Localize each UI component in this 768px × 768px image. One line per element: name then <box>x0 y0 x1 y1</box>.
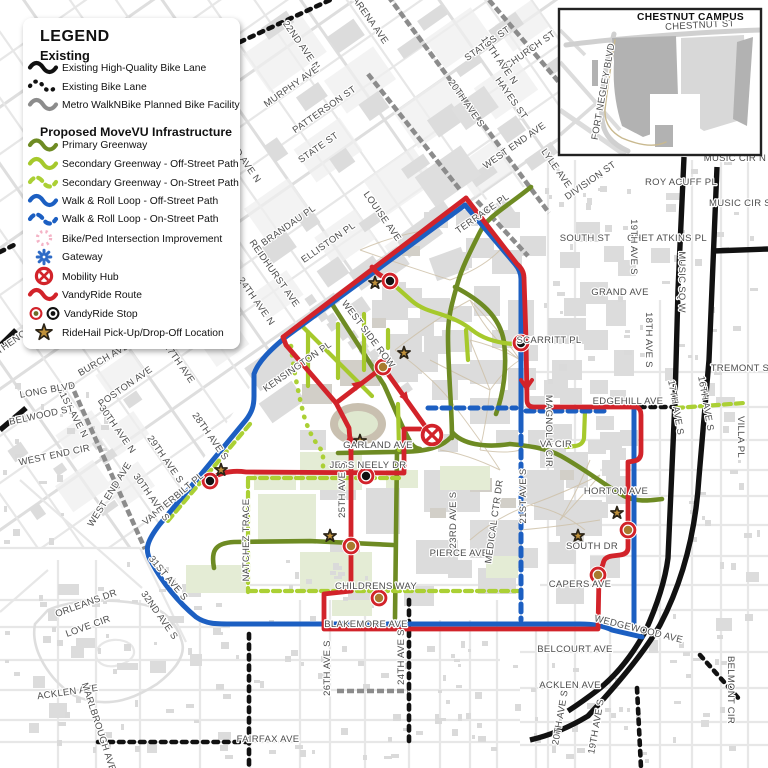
svg-text:PIERCE AVE: PIERCE AVE <box>430 548 489 559</box>
svg-text:MAGNOLIA CIR: MAGNOLIA CIR <box>543 395 554 467</box>
svg-text:CHESTNUT CAMPUS: CHESTNUT CAMPUS <box>637 12 744 23</box>
svg-text:Metro WalkNBike Planned Bike F: Metro WalkNBike Planned Bike Facility <box>62 100 240 111</box>
svg-text:SOUTH ST: SOUTH ST <box>560 233 610 244</box>
svg-text:Existing High-Quality Bike Lan: Existing High-Quality Bike Lane <box>62 63 207 74</box>
svg-text:VandyRide Route: VandyRide Route <box>62 290 142 301</box>
svg-text:BLAKEMORE AVE: BLAKEMORE AVE <box>324 619 407 630</box>
svg-text:Mobility Hub: Mobility Hub <box>62 272 119 283</box>
svg-text:MUSIC SQ W: MUSIC SQ W <box>676 251 687 313</box>
svg-text:HORTON AVE: HORTON AVE <box>584 486 648 497</box>
svg-text:23RD AVE S: 23RD AVE S <box>448 492 459 549</box>
svg-text:Existing: Existing <box>40 48 90 63</box>
svg-text:VILLA PL: VILLA PL <box>735 416 746 458</box>
svg-text:Walk & Roll Loop - Off-Street: Walk & Roll Loop - Off-Street Path <box>62 196 219 207</box>
svg-text:Secondary Greenway - Off-Stree: Secondary Greenway - Off-Street Path <box>62 159 239 170</box>
svg-text:EDGEHILL AVE: EDGEHILL AVE <box>593 396 664 407</box>
svg-text:BELMONT CIR: BELMONT CIR <box>725 656 736 724</box>
svg-text:RideHail Pick-Up/Drop-Off Loca: RideHail Pick-Up/Drop-Off Location <box>62 328 224 339</box>
svg-text:21ST AVE S: 21ST AVE S <box>518 469 529 524</box>
svg-text:SCARRITT PL: SCARRITT PL <box>517 335 582 346</box>
svg-text:24TH AVE S: 24TH AVE S <box>396 629 407 685</box>
svg-text:LEGEND: LEGEND <box>40 28 110 45</box>
svg-text:VandyRide Stop: VandyRide Stop <box>64 309 138 320</box>
svg-text:TREMONT ST: TREMONT ST <box>711 363 768 374</box>
svg-text:GRAND AVE: GRAND AVE <box>591 287 648 298</box>
svg-text:NATCHEZ TRACE: NATCHEZ TRACE <box>241 499 252 582</box>
svg-text:ACKLEN AVE: ACKLEN AVE <box>539 680 600 691</box>
svg-text:ROY ACUFF PL: ROY ACUFF PL <box>645 177 717 188</box>
svg-text:SOUTH DR: SOUTH DR <box>566 541 618 552</box>
svg-text:VA CIR: VA CIR <box>540 439 572 450</box>
svg-text:19TH AVE S: 19TH AVE S <box>628 219 639 275</box>
svg-text:Existing Bike Lane: Existing Bike Lane <box>62 82 147 93</box>
svg-text:Walk & Roll Loop - On-Street P: Walk & Roll Loop - On-Street Path <box>62 214 219 225</box>
svg-text:GARLAND AVE: GARLAND AVE <box>343 440 413 451</box>
svg-text:Gateway: Gateway <box>62 252 103 263</box>
svg-text:25TH AVE S: 25TH AVE S <box>337 462 348 518</box>
svg-text:Proposed MoveVU Infrastructure: Proposed MoveVU Infrastructure <box>40 125 232 139</box>
svg-text:26TH AVE S: 26TH AVE S <box>322 640 333 696</box>
svg-text:MUSIC CIR S: MUSIC CIR S <box>709 198 768 209</box>
svg-text:CAPERS AVE: CAPERS AVE <box>549 579 612 590</box>
svg-text:Bike/Ped Intersection Improvem: Bike/Ped Intersection Improvement <box>62 234 222 245</box>
svg-text:Secondary Greenway - On-Street: Secondary Greenway - On-Street Path <box>62 178 239 189</box>
svg-text:CHILDRENS WAY: CHILDRENS WAY <box>335 581 417 592</box>
svg-text:18TH AVE S: 18TH AVE S <box>643 312 654 368</box>
svg-text:FAIRFAX AVE: FAIRFAX AVE <box>237 734 300 745</box>
svg-text:BELCOURT AVE: BELCOURT AVE <box>537 644 612 655</box>
svg-text:Primary Greenway: Primary Greenway <box>62 140 148 151</box>
